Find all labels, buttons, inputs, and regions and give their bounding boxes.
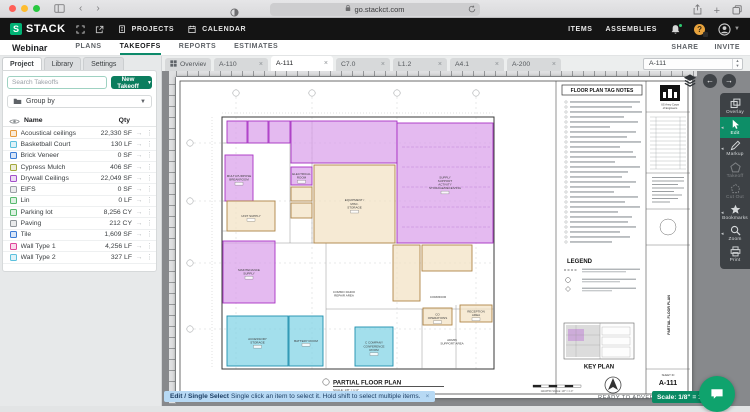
room-number-tag: [351, 210, 359, 213]
sheet-tab-a-110[interactable]: A-110×: [214, 58, 268, 72]
invite-button[interactable]: INVITE: [714, 44, 740, 51]
takeoff-item-icon: [10, 186, 17, 193]
takeoff-row[interactable]: Cypress Mulch406 SF→⋮: [3, 162, 156, 173]
tab-label: A-200: [512, 61, 549, 68]
tooltip-title: Edit / Single Select: [170, 393, 229, 400]
tool-label: Bookmarks: [722, 216, 748, 221]
takeoff-list: Acoustical ceilings22,330 SF→⋮Basketball…: [3, 128, 156, 264]
panel-tab-library[interactable]: Library: [44, 57, 81, 70]
back-button[interactable]: ‹: [79, 3, 82, 14]
room-number-tag: [370, 353, 378, 356]
open-takeoff-arrow-icon[interactable]: →: [136, 231, 143, 238]
room-label: UNIT SUPPLY: [241, 214, 260, 218]
tool-label: Zoom: [728, 237, 741, 242]
north-arrow-icon: [605, 377, 621, 393]
takeoff-item-icon: [10, 164, 17, 171]
project-subnav: Webinar PLANS TAKEOFFS REPORTS ESTIMATES…: [0, 40, 750, 56]
flyout-arrow-icon: ◂: [721, 125, 724, 131]
plan-annotation: ADMINSUPPORT AREA: [440, 338, 463, 346]
takeoff-row[interactable]: Paving212 CY→⋮: [3, 218, 156, 229]
takeoff-item-qty: 8,256 CY: [96, 209, 132, 216]
print-icon: [730, 246, 741, 257]
brand-name: STACK: [26, 23, 66, 35]
group-by-dropdown[interactable]: Group by ▼: [7, 95, 152, 108]
cutout-icon: [730, 183, 741, 194]
room-number-tag: [472, 318, 480, 321]
takeoff-row[interactable]: Parking lot8,256 CY→⋮: [3, 207, 156, 218]
sidebar-toggle-icon[interactable]: [54, 4, 65, 13]
legend: LEGEND: [564, 259, 640, 292]
tab-estimates[interactable]: ESTIMATES: [234, 40, 278, 55]
takeoff-item-name: Lin: [21, 197, 93, 204]
tool-label: Cut Out: [726, 195, 744, 200]
sheet-tab-a-111[interactable]: A-111×: [271, 56, 333, 71]
takeoff-row[interactable]: Tile1,609 SF→⋮: [3, 230, 156, 241]
tool-edit[interactable]: ◂Edit: [720, 117, 750, 138]
group-by-label: Group by: [26, 98, 55, 105]
takeoff-list-card: New Takeoff▼ Group by ▼ Name Qty Acousti…: [2, 70, 157, 272]
takeoff-icon: [730, 162, 741, 173]
takeoff-item-name: Wall Type 2: [21, 254, 93, 261]
takeoff-row[interactable]: Drywall Ceilings22,049 SF→⋮: [3, 173, 156, 184]
folder-icon: [13, 97, 22, 107]
takeoff-region[interactable]: [269, 121, 290, 143]
takeoff-item-qty: 212 CY: [96, 220, 132, 227]
room-number-tag: [434, 321, 442, 324]
row-menu-dots-icon[interactable]: ⋮: [146, 209, 153, 216]
plan-annotation: COMMO RADIOREPAIR AREA: [333, 290, 356, 298]
tool-label: Markup: [726, 152, 743, 157]
panel-tab-settings[interactable]: Settings: [83, 57, 124, 70]
takeoff-item-qty: 406 SF: [96, 164, 132, 171]
agency-line2: of Engineers: [663, 106, 678, 110]
sheet-id: A-111: [659, 380, 677, 387]
open-takeoff-arrow-icon[interactable]: →: [136, 130, 143, 137]
takeoff-region[interactable]: [393, 245, 420, 301]
room-number-tag: [298, 180, 306, 183]
takeoff-item-icon: [10, 243, 17, 250]
takeoff-item-qty: 22,330 SF: [96, 130, 132, 137]
takeoff-row[interactable]: Basketball Court130 LF→⋮: [3, 139, 156, 150]
layers-icon[interactable]: [682, 73, 698, 88]
takeoff-item-name: EIFS: [21, 186, 93, 193]
tool-print[interactable]: Print: [720, 244, 750, 265]
takeoff-item-name: Cypress Mulch: [21, 164, 93, 171]
takeoff-item-icon: [10, 254, 17, 261]
open-takeoff-arrow-icon[interactable]: →: [136, 164, 143, 171]
title-block-sheet-name: PARTIAL FLOOR PLAN: [667, 295, 671, 335]
close-icon[interactable]: ×: [381, 61, 385, 68]
open-takeoff-arrow-icon[interactable]: →: [136, 209, 143, 216]
tool-cut-out: Cut Out: [720, 181, 750, 202]
row-menu-dots-icon[interactable]: ⋮: [146, 197, 153, 204]
address-bar[interactable]: go.stackct.com: [270, 3, 480, 16]
takeoff-item-qty: 130 LF: [96, 141, 132, 148]
sheet-tab-a4.1[interactable]: A4.1×: [450, 58, 504, 72]
reload-icon[interactable]: [468, 5, 476, 15]
takeoff-item-qty: 0 SF: [96, 186, 132, 193]
browser-chrome: ‹ › go.stackct.com +: [0, 0, 750, 18]
graphic-scale-label: GRAPHIC SCALE: 1/8" = 1'-0": [541, 390, 574, 393]
plan-canvas[interactable]: SUPPLYSUPPORTACTIVITYSTORAGE/RECEIVINGMU…: [162, 71, 750, 412]
tab-takeoffs[interactable]: TAKEOFFS: [120, 40, 161, 55]
tab-label: C7.0: [341, 61, 378, 68]
forward-button[interactable]: ›: [96, 3, 99, 14]
takeoff-row[interactable]: Brick Veneer0 SF→⋮: [3, 151, 156, 162]
bottom-strip: [0, 406, 750, 412]
room-number-tag: [247, 218, 255, 221]
sheet-tabstrip: OverviewA-110×A-111×C7.0×L1.2×A4.1×A-200…: [162, 56, 750, 71]
takeoff-item-icon: [10, 220, 17, 227]
takeoff-region[interactable]: [291, 203, 312, 218]
takeoff-item-qty: 327 LF: [96, 254, 132, 261]
tab-label: Overview: [180, 61, 206, 68]
app-header: S STACK PROJECTS CALENDAR ITEMS ASSEMBLI…: [0, 18, 750, 40]
flyout-arrow-icon: ◂: [721, 231, 724, 237]
takeoff-item-name: Wall Type 1: [21, 243, 93, 250]
tool-label: Edit: [730, 131, 739, 136]
overlay-icon: [730, 98, 741, 109]
takeoff-region[interactable]: [291, 187, 312, 201]
sheet-tab-overview[interactable]: Overview: [165, 58, 211, 72]
room-number-tag: [235, 182, 243, 185]
room-number-tag: [302, 343, 310, 346]
plan-title: PARTIAL FLOOR PLAN: [333, 380, 402, 387]
grid-icon: [170, 60, 177, 69]
projects-label: PROJECTS: [132, 26, 175, 33]
takeoff-item-name: Acoustical ceilings: [21, 130, 93, 137]
edit-icon: [730, 119, 741, 130]
takeoff-item-qty: 22,049 SF: [96, 175, 132, 182]
row-menu-dots-icon[interactable]: ⋮: [146, 175, 153, 182]
account-menu[interactable]: ▼: [718, 23, 740, 36]
open-takeoff-arrow-icon[interactable]: →: [136, 197, 143, 204]
flyout-arrow-icon: ◂: [721, 146, 724, 152]
close-icon[interactable]: ×: [324, 60, 328, 67]
tool-label: Takeoff: [727, 174, 744, 179]
takeoff-item-qty: 4,256 LF: [96, 243, 132, 250]
takeoff-item-icon: [10, 130, 17, 137]
notification-dot: [678, 23, 683, 28]
tool-takeoff: Takeoff: [720, 160, 750, 181]
takeoff-item-icon: [10, 175, 17, 182]
takeoff-item-name: Parking lot: [21, 209, 93, 216]
row-menu-dots-icon[interactable]: ⋮: [146, 254, 153, 261]
page-stepper[interactable]: ▲▼: [732, 59, 742, 69]
plan-sheet[interactable]: SUPPLYSUPPORTACTIVITYSTORAGE/RECEIVINGMU…: [176, 77, 692, 398]
takeoff-region[interactable]: [291, 121, 397, 163]
open-takeoff-arrow-icon[interactable]: →: [136, 243, 143, 250]
list-header: Name Qty: [3, 115, 156, 127]
row-menu-dots-icon[interactable]: ⋮: [146, 164, 153, 171]
row-menu-dots-icon[interactable]: ⋮: [146, 152, 153, 159]
row-menu-dots-icon[interactable]: ⋮: [146, 130, 153, 137]
panel-tab-project[interactable]: Project: [2, 57, 42, 70]
room-number-tag: [441, 191, 449, 194]
calendar-label: CALENDAR: [202, 26, 246, 33]
takeoff-row[interactable]: Wall Type 2327 LF→⋮: [3, 252, 156, 263]
qty-column-header: Qty: [96, 117, 130, 124]
search-input[interactable]: [7, 76, 107, 89]
takeoff-row[interactable]: Acoustical ceilings22,330 SF→⋮: [3, 128, 156, 139]
tab-label: L1.2: [398, 61, 435, 68]
assemblies-link[interactable]: ASSEMBLIES: [606, 26, 658, 33]
row-menu-dots-icon[interactable]: ⋮: [146, 231, 153, 238]
tab-reports[interactable]: REPORTS: [179, 40, 216, 55]
sheet-id-label: SHEET ID: [662, 373, 675, 377]
open-takeoff-arrow-icon[interactable]: →: [136, 152, 143, 159]
external-link-icon[interactable]: [95, 25, 104, 34]
edit-mode-tooltip: Edit / Single SelectSingle click an item…: [164, 391, 435, 402]
help-badge: [703, 32, 708, 37]
tool-label: Overlay: [726, 110, 744, 115]
bookmarks-icon: [730, 204, 741, 215]
key-plan: KEY PLAN: [564, 323, 634, 371]
visibility-eye-icon[interactable]: [9, 112, 20, 130]
sheet-tab-a-200[interactable]: A-200×: [507, 58, 561, 72]
takeoff-item-name: Paving: [21, 220, 93, 227]
takeoff-item-icon: [10, 231, 17, 238]
page-selector[interactable]: A-111 ▲▼: [643, 58, 743, 70]
close-window-icon[interactable]: [9, 5, 16, 12]
chevron-down-icon: ▼: [734, 26, 740, 32]
flyout-arrow-icon: ◂: [721, 210, 724, 216]
plan-annotation: CORRIDOR: [430, 295, 447, 299]
room-number-tag: [245, 276, 253, 279]
tooltip-text: Single click an item to select it. Hold …: [231, 393, 420, 400]
graphic-scale: GRAPHIC SCALE: 1/8" = 1'-0": [533, 385, 581, 393]
takeoff-item-qty: 1,609 SF: [96, 231, 132, 238]
takeoff-item-name: Tile: [21, 231, 93, 238]
project-name[interactable]: Webinar: [12, 43, 47, 53]
tab-plans[interactable]: PLANS: [75, 40, 101, 55]
lock-icon: [345, 4, 351, 14]
takeoff-item-qty: 0 LF: [96, 197, 132, 204]
row-menu-dots-icon[interactable]: ⋮: [146, 141, 153, 148]
name-column-header: Name: [24, 117, 92, 124]
nav-projects[interactable]: PROJECTS: [118, 25, 175, 33]
open-takeoff-arrow-icon[interactable]: →: [136, 254, 143, 261]
notifications-bell-icon[interactable]: [670, 24, 681, 35]
avatar-icon: [718, 23, 731, 36]
takeoff-item-name: Drywall Ceilings: [21, 175, 93, 182]
room-number-tag: [254, 345, 262, 348]
zoom-icon: [730, 225, 741, 236]
takeoff-item-icon: [10, 197, 17, 204]
help-icon[interactable]: ?: [694, 24, 705, 35]
tag-notes: FLOOR PLAN TAG NOTES: [562, 85, 642, 243]
takeoff-item-icon: [10, 209, 17, 216]
tool-markup[interactable]: ◂Markup: [720, 138, 750, 159]
vertical-ruler: [169, 77, 176, 404]
takeoff-panel: Project Library Settings New Takeoff▼ Gr…: [0, 56, 162, 412]
markup-icon: [730, 140, 741, 151]
open-takeoff-arrow-icon[interactable]: →: [136, 141, 143, 148]
row-menu-dots-icon[interactable]: ⋮: [146, 186, 153, 193]
legend-title: LEGEND: [567, 259, 593, 265]
takeoff-item-name: Basketball Court: [21, 141, 93, 148]
tool-label: Print: [730, 258, 741, 263]
tab-label: A-110: [219, 61, 256, 68]
takeoff-region[interactable]: [248, 121, 268, 143]
tab-label: A-111: [276, 60, 321, 67]
takeoff-item-icon: [10, 152, 17, 159]
sheet-tab-c7.0[interactable]: C7.0×: [336, 58, 390, 72]
items-link[interactable]: ITEMS: [568, 26, 592, 33]
tool-bookmarks[interactable]: ◂Bookmarks: [720, 202, 750, 223]
canvas-toolbar: Overlay◂Edit◂MarkupTakeoffCut Out◂Bookma…: [720, 93, 750, 269]
chat-bubble-button[interactable]: [699, 376, 735, 412]
close-icon[interactable]: ×: [438, 61, 442, 68]
sheet-tab-l1.2[interactable]: L1.2×: [393, 58, 447, 72]
new-takeoff-button[interactable]: New Takeoff▼: [111, 76, 152, 89]
takeoff-row[interactable]: EIFS0 SF→⋮: [3, 184, 156, 195]
share-button[interactable]: SHARE: [671, 44, 698, 51]
takeoff-row[interactable]: Wall Type 14,256 LF→⋮: [3, 241, 156, 252]
previous-page-button[interactable]: ←: [703, 74, 717, 88]
plan-title-block: PARTIAL FLOOR PLAN SCALE: 1/8" = 1'-0": [323, 379, 444, 392]
row-menu-dots-icon[interactable]: ⋮: [146, 220, 153, 227]
takeoff-item-qty: 0 SF: [96, 152, 132, 159]
close-icon[interactable]: ×: [495, 61, 499, 68]
chevron-down-icon: ▼: [140, 99, 146, 105]
window-controls[interactable]: [9, 5, 40, 12]
url-text: go.stackct.com: [354, 5, 404, 14]
open-takeoff-arrow-icon[interactable]: →: [136, 186, 143, 193]
fullscreen-icon[interactable]: [76, 25, 85, 34]
stack-logo-icon: S: [10, 23, 22, 35]
open-takeoff-arrow-icon[interactable]: →: [136, 220, 143, 227]
row-menu-dots-icon[interactable]: ⋮: [146, 243, 153, 250]
takeoff-item-icon: [10, 141, 17, 148]
page-selector-value: A-111: [649, 60, 666, 67]
key-plan-title: KEY PLAN: [584, 365, 614, 371]
tool-zoom[interactable]: ◂Zoom: [720, 223, 750, 244]
takeoff-region[interactable]: [227, 121, 247, 143]
open-takeoff-arrow-icon[interactable]: →: [136, 175, 143, 182]
room-label: BATTERY ROOM: [294, 339, 318, 343]
title-block: US Army Corps of Engineers: [646, 85, 690, 387]
room-label: ACCESSORYSTORAGE: [248, 337, 267, 345]
close-icon[interactable]: ×: [425, 393, 429, 400]
stack-logo[interactable]: S STACK: [10, 23, 66, 35]
tool-overlay[interactable]: Overlay: [720, 96, 750, 117]
new-tab-icon[interactable]: +: [714, 6, 720, 17]
close-icon[interactable]: ×: [552, 61, 556, 68]
chat-icon: [709, 386, 725, 402]
tag-notes-title: FLOOR PLAN TAG NOTES: [571, 88, 634, 94]
takeoff-item-name: Brick Veneer: [21, 152, 93, 159]
tab-label: A4.1: [455, 61, 492, 68]
next-page-button[interactable]: →: [722, 74, 736, 88]
room-label: MULTI-PURPOSEBREAKROOM: [227, 174, 251, 182]
takeoff-region[interactable]: [422, 245, 472, 271]
minimize-window-icon[interactable]: [21, 5, 28, 12]
nav-calendar[interactable]: CALENDAR: [188, 25, 246, 33]
takeoff-row[interactable]: Lin0 LF→⋮: [3, 196, 156, 207]
zoom-window-icon[interactable]: [33, 5, 40, 12]
close-icon[interactable]: ×: [259, 61, 263, 68]
